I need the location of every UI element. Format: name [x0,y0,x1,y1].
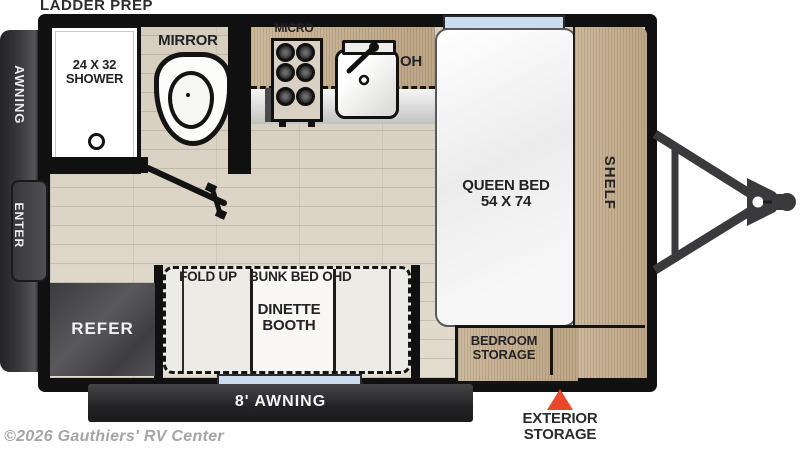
shower-label: 24 X 32 SHOWER [52,58,137,85]
queen-bed-label: QUEEN BED 54 X 74 [437,178,575,210]
copyright-watermark: ©2026 Gauthiers' RV Center [4,428,224,446]
exterior-storage-marker-icon [547,389,573,410]
shower-stall: 24 X 32 SHOWER [48,24,141,174]
dinette-wall-stub [154,265,163,378]
fold-up-label: FOLD UP [168,270,248,284]
faucet-spout-icon [335,38,399,90]
queen-bed: QUEEN BED 54 X 74 [435,28,577,327]
awning-8ft-bar: 8' AWNING [88,384,473,422]
rv-floorplan: LADDER PREP ©2026 Gauthiers' RV Center A… [0,0,800,450]
ladder-prep-label: LADDER PREP [40,0,153,14]
bedroom-storage-label: BEDROOM STORAGE [455,334,553,361]
exterior-storage-label: EXTERIOR STORAGE [497,411,623,443]
refer-label: REFER [50,319,155,339]
bunk-bed-ohd-label: BUNK BED OHD [249,270,409,284]
dinette-booth-label: DINETTE BOOTH [247,302,331,334]
trailer-hitch-icon [650,118,800,288]
refrigerator: REFER [50,283,155,376]
awning-side-label: AWNING [12,45,26,145]
bathroom-wall [38,157,148,173]
entry-door-label: ENTER [12,188,25,263]
dinette-wall-stub [411,265,420,378]
mirror-label: MIRROR [146,33,230,49]
bathroom-wall [228,14,251,174]
stove-icon [271,38,323,122]
toilet-seat-icon [168,71,214,129]
shelf-label: SHELF [601,147,617,219]
overhead-cabinet-label: OH [394,54,428,70]
bathroom-door-swing-icon [140,158,240,220]
shelf-divider-line [575,325,645,328]
micro-label: MICRO [262,22,326,35]
awning-8ft-label: 8' AWNING [88,393,473,411]
shower-drain-icon [88,133,105,150]
